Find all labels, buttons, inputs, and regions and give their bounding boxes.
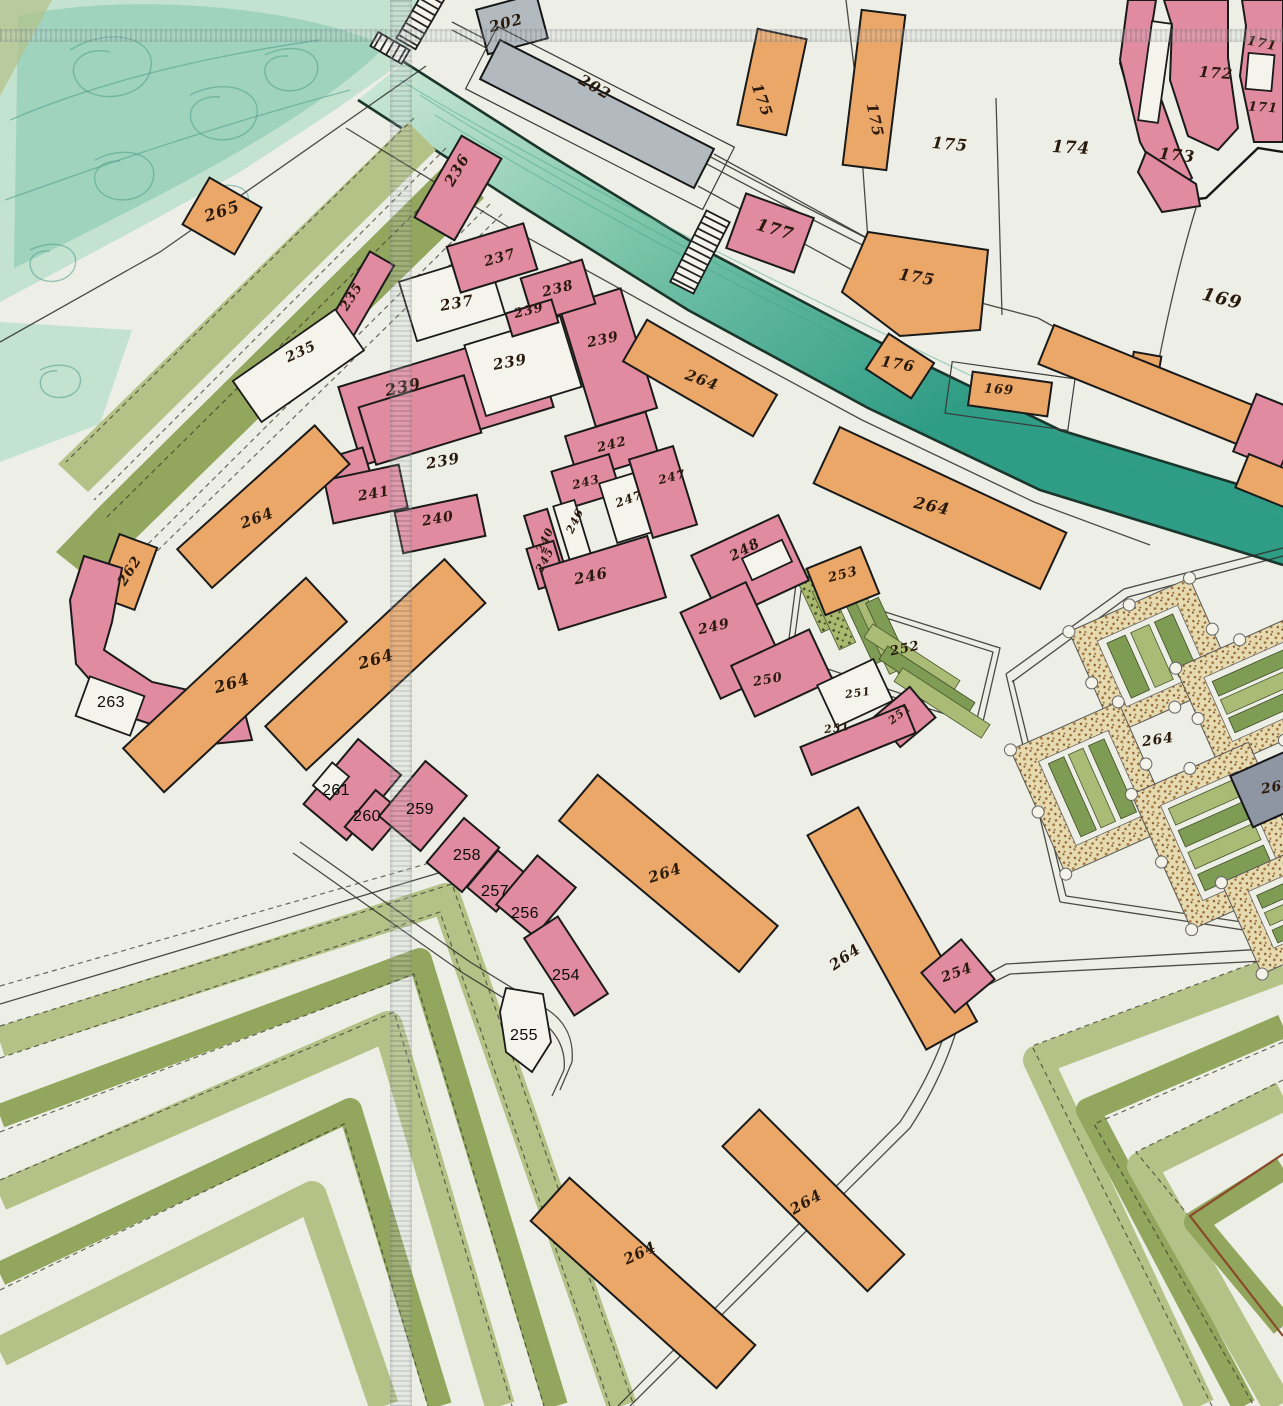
map-fold-horizontal: [0, 29, 1283, 42]
map-artwork: [0, 0, 1283, 1406]
map-fold-vertical: [390, 0, 412, 1406]
historical-map-canvas[interactable]: 2022022652361751751751741721711711731771…: [0, 0, 1283, 1406]
